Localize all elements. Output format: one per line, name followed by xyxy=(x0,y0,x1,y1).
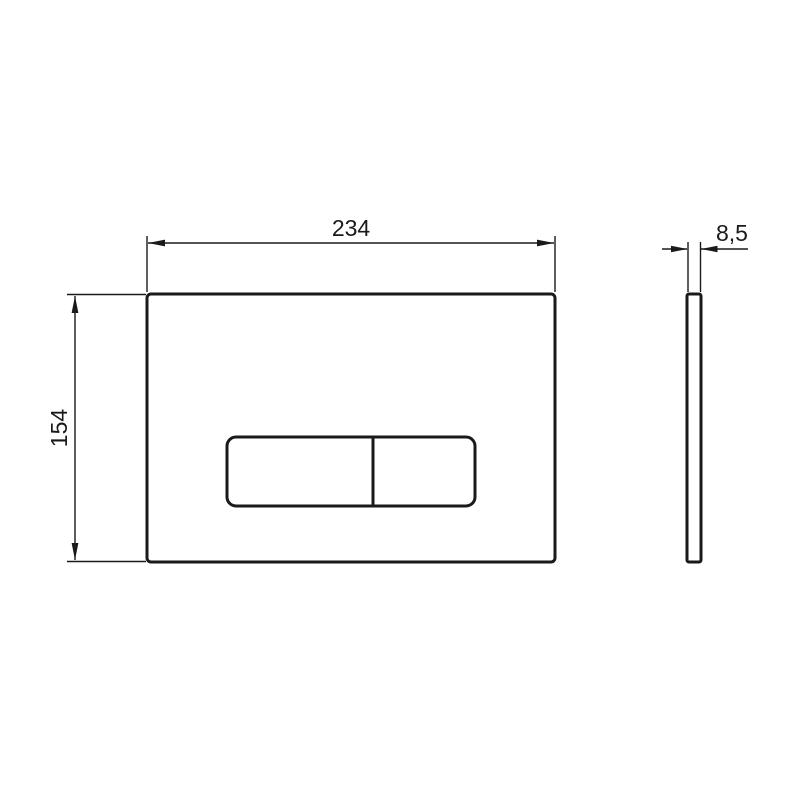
arrowhead-bottom-icon xyxy=(72,543,79,560)
side-view xyxy=(687,294,701,562)
flush-buttons-outline xyxy=(227,437,475,506)
flush-plate-drawing: 234 154 8,5 xyxy=(0,0,800,800)
arrowhead-inward-left-icon xyxy=(671,246,688,252)
arrowhead-right-icon xyxy=(537,240,554,247)
side-plate-outline xyxy=(687,294,701,562)
arrowhead-inward-right-icon xyxy=(701,246,718,252)
height-dimension-label: 154 xyxy=(46,409,72,448)
depth-dimension: 8,5 xyxy=(662,220,748,292)
height-dimension: 154 xyxy=(46,295,146,562)
width-dimension: 234 xyxy=(147,215,555,292)
width-dimension-label: 234 xyxy=(332,215,371,241)
front-view xyxy=(147,294,555,562)
front-plate-outline xyxy=(147,294,555,562)
drawing-canvas: 234 154 8,5 xyxy=(0,0,800,800)
arrowhead-left-icon xyxy=(148,240,165,247)
arrowhead-top-icon xyxy=(72,296,79,313)
depth-dimension-label: 8,5 xyxy=(716,220,748,246)
